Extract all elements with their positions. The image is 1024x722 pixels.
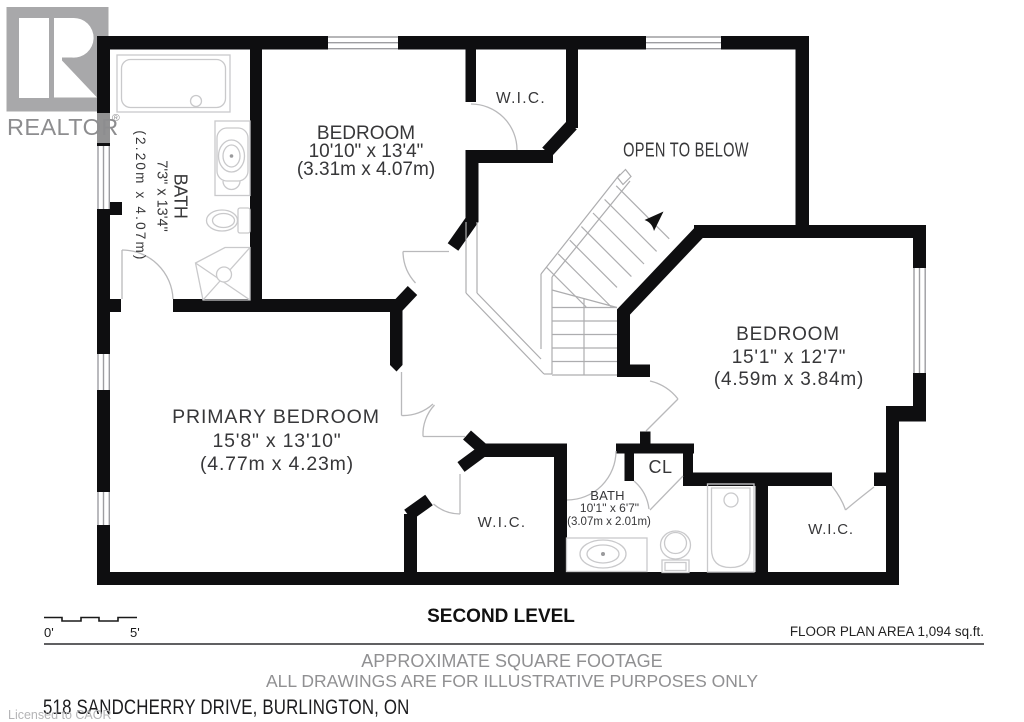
svg-text:ALL DRAWINGS ARE FOR ILLUSTRAT: ALL DRAWINGS ARE FOR ILLUSTRATIVE PURPOS…: [266, 671, 758, 691]
svg-text:FLOOR PLAN AREA 1,094 sq.ft.: FLOOR PLAN AREA 1,094 sq.ft.: [790, 624, 984, 639]
svg-text:OPEN TO BELOW: OPEN TO BELOW: [623, 138, 749, 161]
svg-text:BEDROOM: BEDROOM: [736, 324, 840, 345]
svg-text:REALTOR: REALTOR: [7, 114, 119, 140]
svg-text:15'8" x 13'10": 15'8" x 13'10": [213, 430, 342, 452]
svg-text:(2.20m x 4.07m): (2.20m x 4.07m): [133, 130, 148, 261]
svg-text:PRIMARY BEDROOM: PRIMARY BEDROOM: [172, 406, 380, 428]
svg-text:CL: CL: [648, 457, 672, 477]
svg-text:SECOND LEVEL: SECOND LEVEL: [427, 606, 575, 627]
svg-text:APPROXIMATE SQUARE FOOTAGE: APPROXIMATE SQUARE FOOTAGE: [361, 651, 662, 671]
svg-text:W.I.C.: W.I.C.: [496, 90, 546, 107]
svg-text:10'1" x 6'7": 10'1" x 6'7": [580, 501, 639, 515]
svg-text:®: ®: [112, 112, 120, 124]
svg-text:(3.07m x 2.01m): (3.07m x 2.01m): [567, 516, 651, 528]
svg-text:15'1" x 12'7": 15'1" x 12'7": [732, 347, 847, 368]
svg-text:(4.59m x 3.84m): (4.59m x 3.84m): [714, 369, 864, 390]
svg-text:W.I.C.: W.I.C.: [808, 521, 854, 538]
svg-text:5': 5': [130, 625, 140, 640]
svg-text:(4.77m x 4.23m): (4.77m x 4.23m): [200, 453, 354, 475]
svg-text:Licensed to CAOR: Licensed to CAOR: [8, 708, 112, 722]
svg-text:W.I.C.: W.I.C.: [478, 514, 527, 531]
svg-text:BATH: BATH: [171, 174, 191, 219]
svg-text:(3.31m x 4.07m): (3.31m x 4.07m): [297, 159, 435, 180]
svg-text:7'3" x 13'4": 7'3" x 13'4": [154, 160, 170, 231]
svg-text:0': 0': [44, 625, 54, 640]
